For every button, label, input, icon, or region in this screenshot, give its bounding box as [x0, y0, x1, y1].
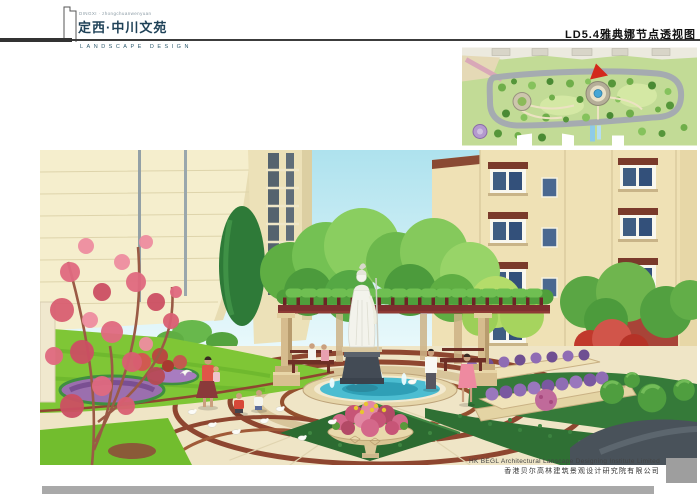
logo-mark-icon: [60, 5, 78, 42]
company-name-cn: 香港贝尔高林建筑景观设计研究院有限公司: [260, 467, 660, 476]
logo-subtitle: LANDSCAPE DESIGN: [80, 44, 192, 50]
perspective-rendering: [40, 150, 697, 465]
plan-node-athena: [586, 82, 610, 106]
logo-tagline: DINGXI · zhongchuanwenyuan: [79, 11, 151, 16]
company-name-en: HK BEGL Architectural Lanscape Designing…: [260, 458, 660, 467]
footer-gray-block: [666, 458, 697, 483]
footer-bottom-bar: [42, 486, 654, 494]
project-title: 定西·中川文苑: [78, 17, 167, 36]
presentation-board: DINGXI · zhongchuanwenyuan 定西·中川文苑 LANDS…: [0, 0, 700, 495]
site-plan-thumbnail: [462, 47, 697, 146]
header-rule-thick: [0, 38, 72, 42]
footer: HK BEGL Architectural Lanscape Designing…: [260, 458, 660, 476]
sheet-title: LD5.4雅典娜节点透视图: [565, 26, 696, 42]
